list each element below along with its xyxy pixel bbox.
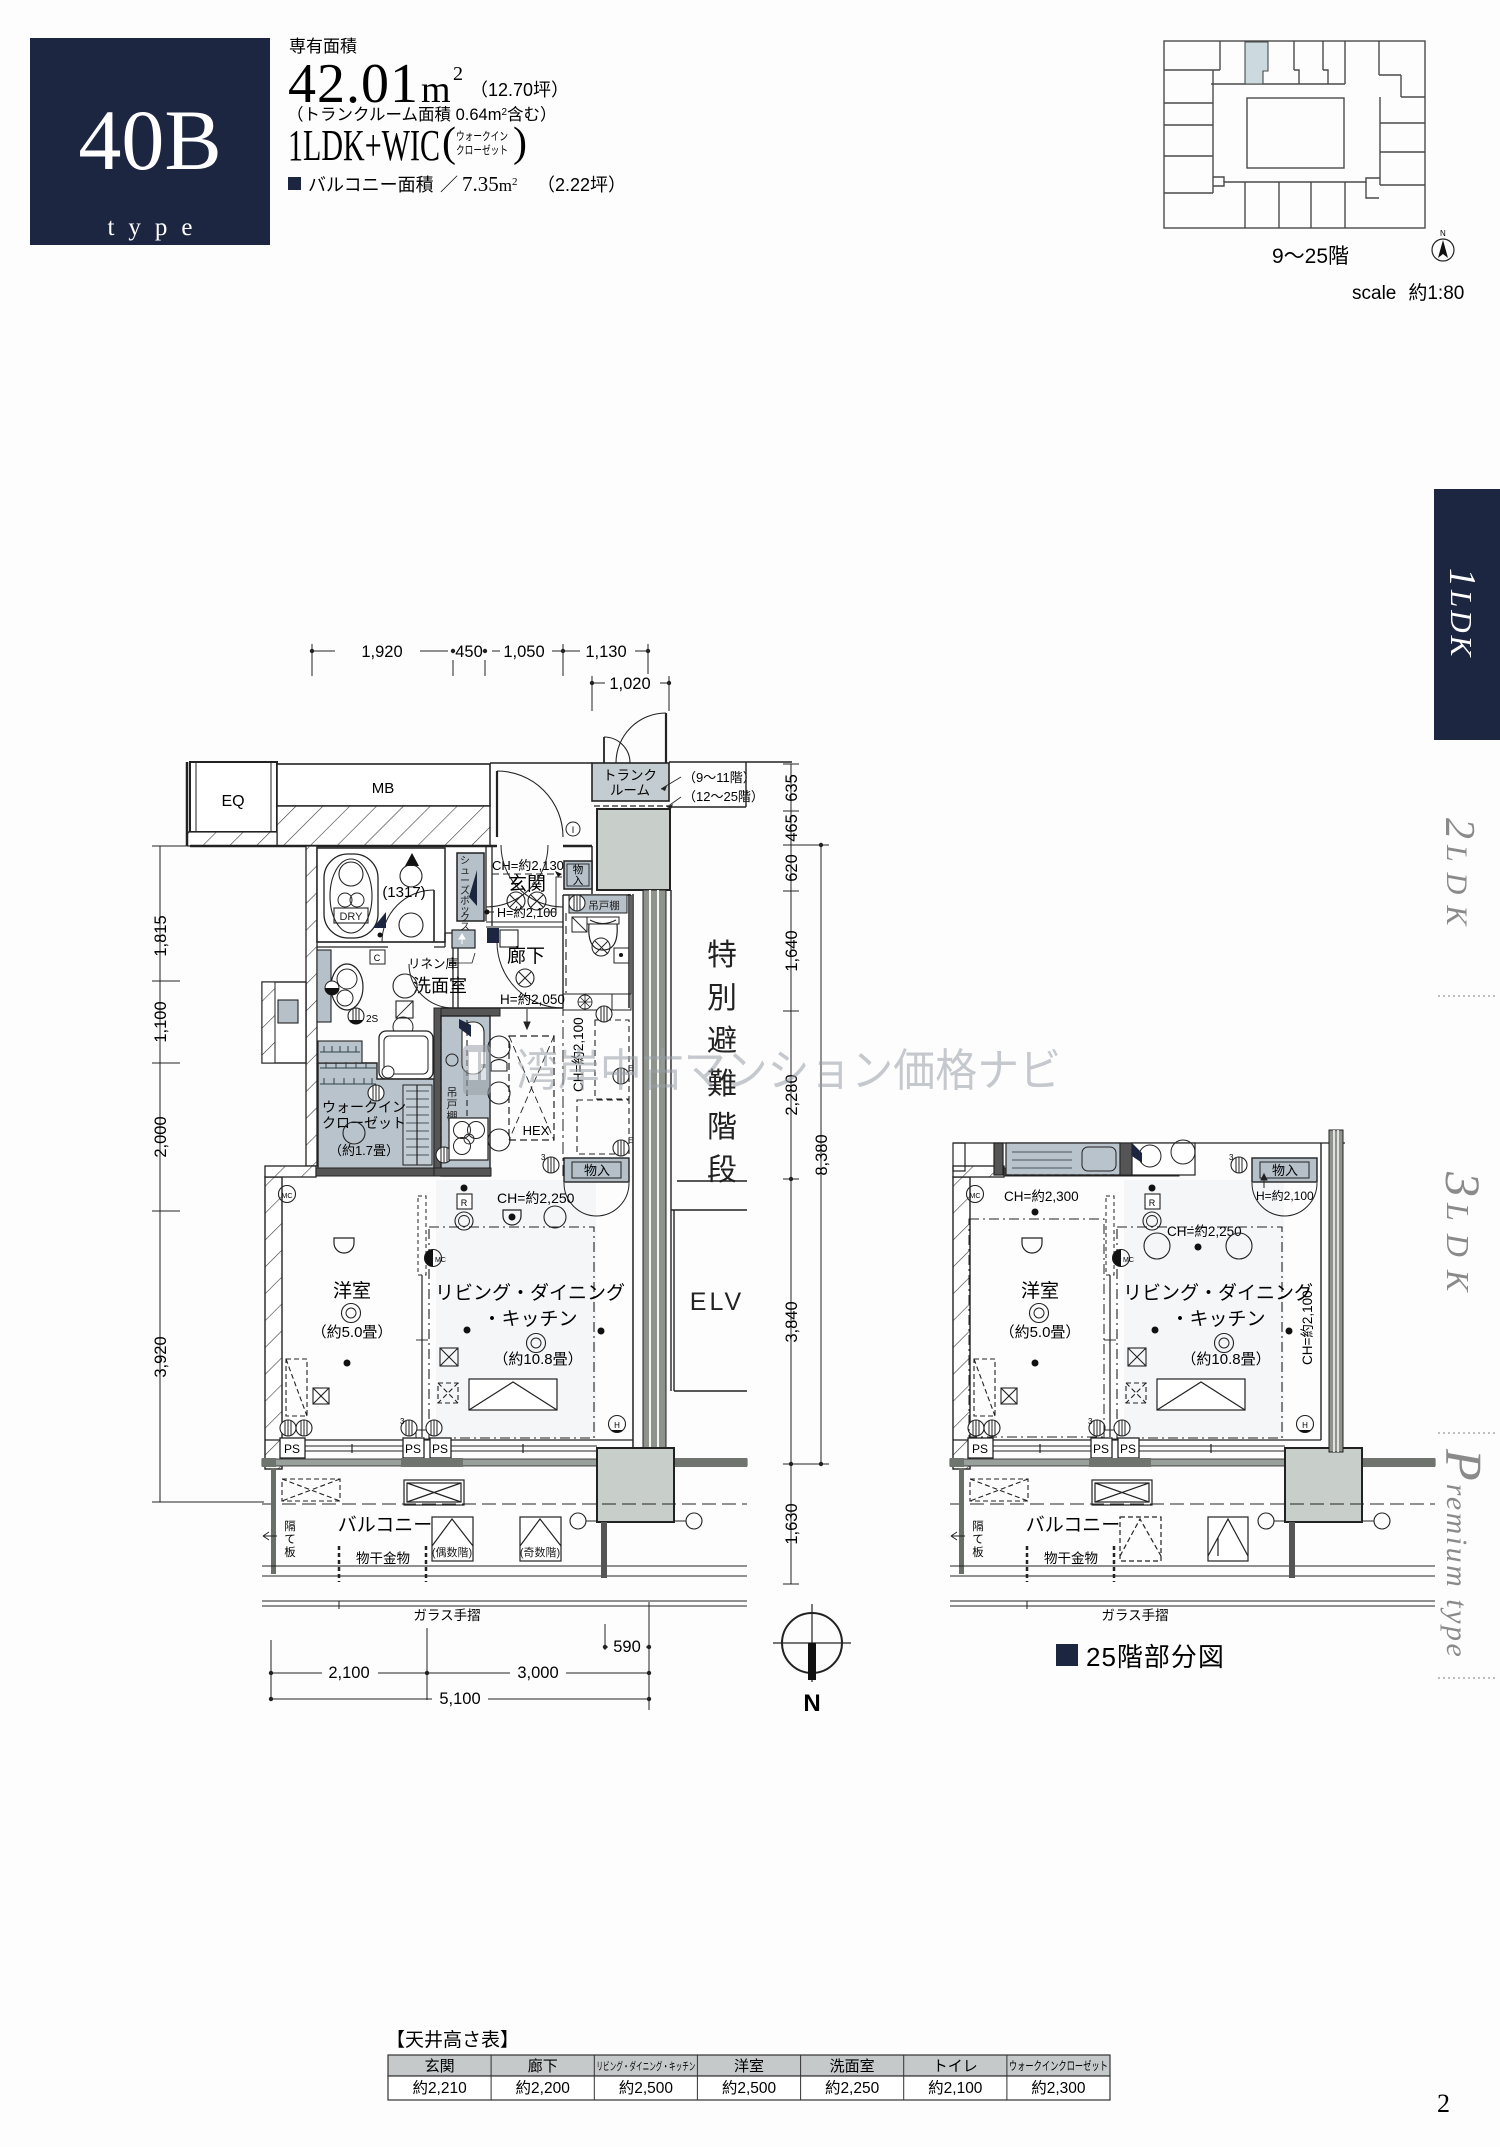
svg-text:H=約2,100: H=約2,100 — [1256, 1188, 1314, 1203]
svg-text:階: 階 — [707, 1111, 737, 1144]
svg-text:物干金物: 物干金物 — [356, 1551, 410, 1566]
svg-text:CH=約2,100: CH=約2,100 — [1300, 1290, 1315, 1365]
svg-text:1,020: 1,020 — [609, 675, 650, 693]
svg-text:ELV: ELV — [690, 1288, 744, 1316]
svg-text:／: ／ — [440, 175, 458, 195]
svg-text:クローゼット: クローゼット — [456, 144, 508, 157]
svg-text:ウォークイン: ウォークイン — [456, 130, 508, 143]
svg-text:（9～11階）: （9～11階） — [683, 770, 756, 785]
svg-text:1,920: 1,920 — [361, 643, 402, 661]
svg-text:PS: PS — [405, 1442, 421, 1456]
svg-text:バルコニー: バルコニー — [338, 1515, 433, 1536]
svg-text:N: N — [1440, 229, 1446, 238]
svg-text:MC: MC — [435, 1257, 446, 1264]
svg-text:590: 590 — [613, 1638, 641, 1656]
svg-text:H: H — [614, 1421, 620, 1430]
svg-text:ルーム: ルーム — [610, 783, 650, 798]
svg-text:CH=約2,300: CH=約2,300 — [1004, 1189, 1079, 1204]
svg-text:(奇数階): (奇数階) — [520, 1545, 560, 1559]
svg-text:(: ( — [442, 120, 456, 166]
svg-text:1LDK: 1LDK — [1441, 568, 1483, 659]
svg-text:R: R — [461, 1198, 468, 1208]
svg-text:約2,250: 約2,250 — [825, 2079, 880, 2097]
svg-text:物入: 物入 — [584, 1163, 610, 1178]
svg-text:（12.70坪）: （12.70坪） — [470, 80, 569, 100]
svg-text:N: N — [803, 1690, 820, 1717]
svg-text:450: 450 — [455, 643, 483, 661]
svg-text:洗面室: 洗面室 — [830, 2058, 875, 2075]
svg-text:ウォークイン: ウォークイン — [322, 1099, 406, 1115]
svg-text:type: type — [107, 214, 206, 241]
svg-text:1LDK+WIC: 1LDK+WIC — [288, 121, 440, 170]
svg-text:約2,210: 約2,210 — [412, 2079, 467, 2097]
svg-text:EQ: EQ — [221, 793, 244, 810]
svg-text:（2.22坪）: （2.22坪） — [537, 175, 626, 195]
svg-text:入: 入 — [573, 875, 584, 887]
svg-text:(1317): (1317) — [382, 884, 425, 901]
svg-text:2S: 2S — [366, 1014, 379, 1025]
svg-text:バルコニー面積: バルコニー面積 — [308, 175, 434, 195]
svg-text:1,050: 1,050 — [503, 643, 544, 661]
svg-text:465: 465 — [783, 814, 801, 842]
svg-text:洋室: 洋室 — [333, 1280, 371, 1302]
svg-text:【天井高さ表】: 【天井高さ表】 — [386, 2029, 519, 2051]
svg-text:5,100: 5,100 — [439, 1690, 480, 1708]
svg-text:H=約2,050: H=約2,050 — [500, 992, 565, 1007]
svg-text:（12～25階）: （12～25階） — [683, 789, 764, 804]
svg-text:1,640: 1,640 — [783, 930, 801, 971]
svg-text:7.35m2: 7.35m2 — [462, 172, 517, 196]
svg-text:約2,100: 約2,100 — [928, 2079, 983, 2097]
svg-text:1,630: 1,630 — [783, 1503, 801, 1544]
svg-text:約2,200: 約2,200 — [516, 2079, 571, 2097]
svg-text:トランク: トランク — [603, 768, 657, 783]
svg-text:廊下: 廊下 — [507, 945, 545, 967]
svg-text:約2,500: 約2,500 — [619, 2079, 674, 2097]
svg-text:620: 620 — [783, 854, 801, 882]
svg-text:板: 板 — [284, 1545, 296, 1559]
svg-text:3: 3 — [541, 1153, 546, 1162]
svg-text:): ) — [513, 120, 527, 166]
svg-text:9～25階: 9～25階 — [1272, 245, 1349, 268]
svg-text:隔: 隔 — [284, 1520, 296, 1533]
svg-text:・キッチン: ・キッチン — [482, 1309, 577, 1330]
svg-text:MB: MB — [372, 780, 395, 797]
svg-text:(偶数階): (偶数階) — [432, 1545, 472, 1559]
svg-text:8,380: 8,380 — [813, 1134, 831, 1175]
svg-text:洋室: 洋室 — [734, 2058, 764, 2075]
svg-text:約2,500: 約2,500 — [722, 2079, 777, 2097]
svg-text:2: 2 — [1437, 2089, 1450, 2118]
svg-text:scale約1:80: scale約1:80 — [1352, 282, 1464, 304]
svg-text:特: 特 — [707, 939, 737, 972]
svg-text:PS: PS — [284, 1442, 300, 1456]
svg-text:3,920: 3,920 — [152, 1336, 170, 1377]
svg-text:トイレ: トイレ — [933, 2058, 978, 2075]
svg-text:リビング・ダイニング・キッチン: リビング・ダイニング・キッチン — [596, 2059, 695, 2073]
svg-text:湾岸中古マンション価格ナビ: 湾岸中古マンション価格ナビ — [516, 1045, 1061, 1096]
svg-text:H=約2,100: H=約2,100 — [497, 905, 557, 920]
svg-text:リネン庫: リネン庫 — [408, 957, 458, 971]
svg-text:リビング・ダイニング: リビング・ダイニング — [435, 1282, 625, 1304]
svg-text:吊戸棚: 吊戸棚 — [588, 899, 620, 912]
svg-text:CH=約2,250: CH=約2,250 — [497, 1190, 575, 1206]
svg-text:HEX: HEX — [523, 1123, 550, 1138]
svg-text:m: m — [421, 69, 451, 111]
svg-text:別: 別 — [707, 982, 737, 1015]
svg-text:段: 段 — [707, 1154, 737, 1187]
svg-text:吊: 吊 — [447, 1086, 458, 1099]
svg-text:戸: 戸 — [447, 1099, 458, 1111]
svg-text:約2,300: 約2,300 — [1031, 2079, 1086, 2097]
svg-text:て: て — [284, 1534, 296, 1546]
svg-text:ウォークインクローゼット: ウォークインクローゼット — [1009, 2059, 1108, 2073]
svg-text:3,840: 3,840 — [783, 1301, 801, 1342]
svg-text:洗面室: 洗面室 — [413, 976, 467, 996]
svg-text:MC: MC — [282, 1193, 293, 1200]
svg-text:2: 2 — [453, 63, 463, 85]
svg-text:（約5.0畳）: （約5.0畳） — [312, 1324, 393, 1341]
svg-text:635: 635 — [783, 774, 801, 802]
svg-text:25階部分図: 25階部分図 — [1086, 1642, 1225, 1672]
svg-text:40B: 40B — [78, 92, 221, 188]
svg-text:（約10.8畳）: （約10.8畳） — [493, 1351, 582, 1368]
svg-text:廊下: 廊下 — [528, 2058, 558, 2075]
svg-text:3: 3 — [400, 1417, 405, 1426]
svg-text:3,000: 3,000 — [517, 1664, 558, 1682]
svg-text:2,100: 2,100 — [328, 1664, 369, 1682]
svg-text:1,815: 1,815 — [152, 915, 170, 956]
svg-text:1,100: 1,100 — [152, 1001, 170, 1042]
svg-text:DRY: DRY — [339, 911, 363, 923]
svg-text:1,130: 1,130 — [585, 643, 626, 661]
svg-text:I: I — [572, 825, 575, 835]
svg-text:玄関: 玄関 — [425, 2058, 455, 2075]
svg-text:2,000: 2,000 — [152, 1116, 170, 1157]
svg-text:（約1.7畳）: （約1.7畳） — [329, 1143, 399, 1158]
svg-text:PS: PS — [432, 1442, 448, 1456]
svg-text:C: C — [374, 953, 381, 963]
svg-text:ガラス手摺: ガラス手摺 — [413, 1608, 480, 1623]
